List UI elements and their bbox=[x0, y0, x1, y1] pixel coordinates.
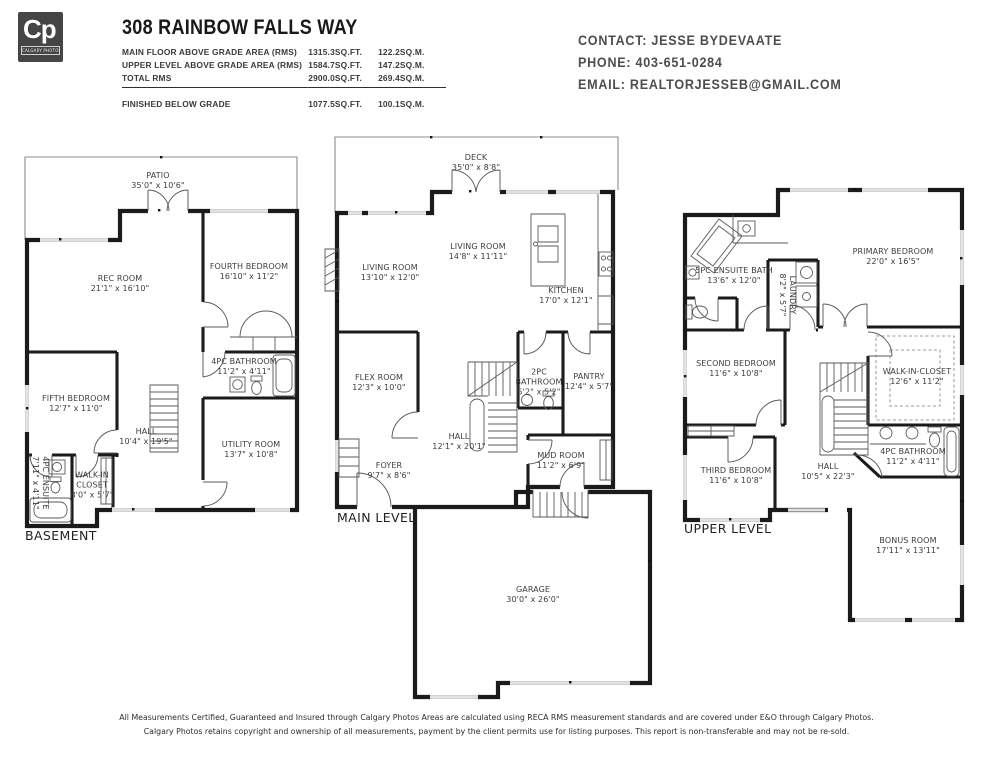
room-label-basement-walkin-closet: WALK-IN CLOSET 8'0" x 5'7" bbox=[67, 471, 117, 502]
room-label-bonus-room: BONUS ROOM 17'11" x 13'11" bbox=[876, 536, 940, 556]
room-label-foyer: FOYER 9'7" x 8'6" bbox=[367, 461, 410, 481]
floor-plan-svg bbox=[0, 0, 993, 768]
room-label-rec-room: REC ROOM 21'1" x 16'10" bbox=[91, 274, 150, 294]
room-label-basement-ensuite: 4PC ENSUITE 7'11" x 4'11" bbox=[30, 456, 50, 509]
room-label-garage: GARAGE 30'0" x 26'0" bbox=[506, 585, 559, 605]
room-label-2pc-bathroom: 2PC BATHROOM 5'2" x 5'2" bbox=[511, 368, 567, 399]
room-label-utility-room: UTILITY ROOM 13'7" x 10'8" bbox=[222, 440, 281, 460]
room-label-upper-bathroom: 4PC BATHROOM 11'2" x 4'11" bbox=[880, 447, 946, 467]
room-label-kitchen: KITCHEN 17'0" x 12'1" bbox=[539, 286, 592, 306]
room-label-deck: DECK 35'0" x 8'8" bbox=[452, 153, 500, 173]
floorplan-page: Cp CALGARY PHOTOS 308 RAINBOW FALLS WAY … bbox=[0, 0, 993, 768]
room-label-main-hall: HALL 12'1" x 20'1" bbox=[432, 432, 485, 452]
room-label-upper-hall: HALL 10'5" x 22'3" bbox=[801, 462, 854, 482]
room-label-basement-patio: PATIO 35'0" x 10'6" bbox=[131, 171, 184, 191]
room-label-third-bedroom: THIRD BEDROOM 11'6" x 10'8" bbox=[701, 466, 772, 486]
room-label-fourth-bedroom: FOURTH BEDROOM 16'10" x 11'2" bbox=[210, 262, 288, 282]
upper-level-label: UPPER LEVEL bbox=[684, 521, 771, 536]
room-label-fifth-bedroom: FIFTH BEDROOM 12'7" x 11'0" bbox=[42, 394, 110, 414]
outdoor-outlines bbox=[25, 137, 618, 240]
room-label-basement-bathroom: 4PC BATHROOM 11'2" x 4'11" bbox=[211, 357, 277, 377]
room-label-laundry: LAUNDRY 8'2" x 5'7" bbox=[777, 273, 797, 316]
room-label-living-room-center: LIVING ROOM 14'8" x 11'11" bbox=[449, 242, 508, 262]
disclaimer-line-1: All Measurements Certified, Guaranteed a… bbox=[0, 711, 993, 725]
room-label-flex-room: FLEX ROOM 12'3" x 10'0" bbox=[352, 373, 405, 393]
room-label-pantry: PANTRY 12'4" x 5'7" bbox=[565, 372, 613, 392]
basement-level-label: BASEMENT bbox=[25, 528, 97, 543]
room-label-second-bedroom: SECOND BEDROOM 11'6" x 10'8" bbox=[696, 359, 776, 379]
disclaimer: All Measurements Certified, Guaranteed a… bbox=[0, 711, 993, 738]
room-label-upper-walkin-closet: WALK-IN-CLOSET 12'6" x 11'2" bbox=[883, 367, 951, 387]
room-label-primary-bedroom: PRIMARY BEDROOM 22'0" x 16'5" bbox=[853, 247, 934, 267]
room-label-mud-room: MUD ROOM 11'2" x 6'9" bbox=[537, 451, 585, 471]
room-label-living-room-left: LIVING ROOM 13'10" x 12'0" bbox=[361, 263, 420, 283]
disclaimer-line-2: Calgary Photos retains copyright and own… bbox=[0, 725, 993, 739]
room-label-basement-hall: HALL 10'4" x 19'5" bbox=[119, 427, 172, 447]
main-level-label: MAIN LEVEL bbox=[337, 510, 416, 525]
room-label-ensuite-bath: 5PC ENSUITE BATH 13'6" x 12'0" bbox=[695, 266, 773, 286]
